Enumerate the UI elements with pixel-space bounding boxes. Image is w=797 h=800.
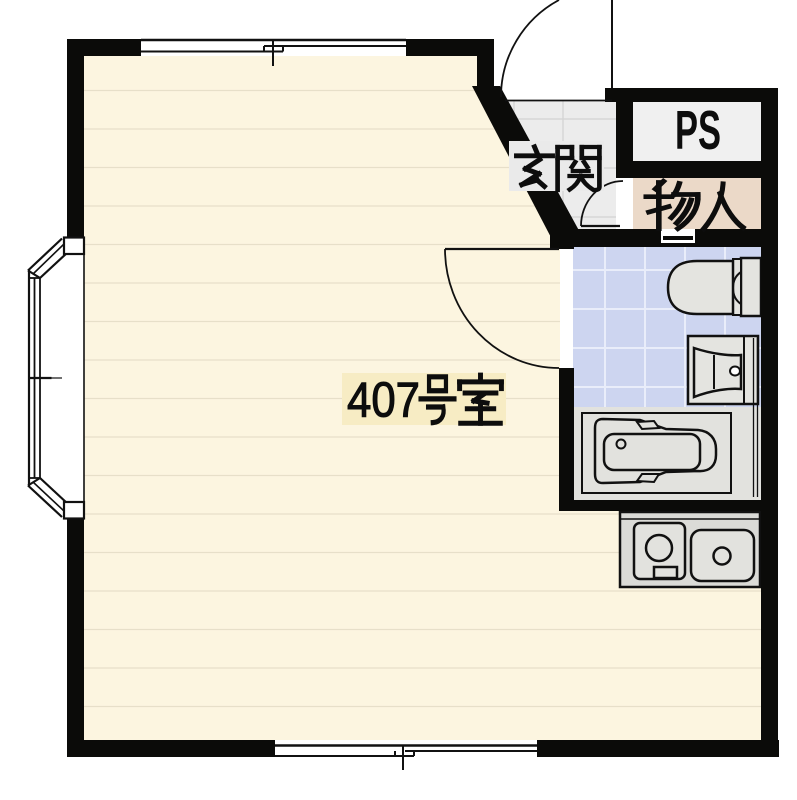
svg-text:PS: PS <box>675 99 721 161</box>
svg-text:407: 407 <box>347 374 420 428</box>
